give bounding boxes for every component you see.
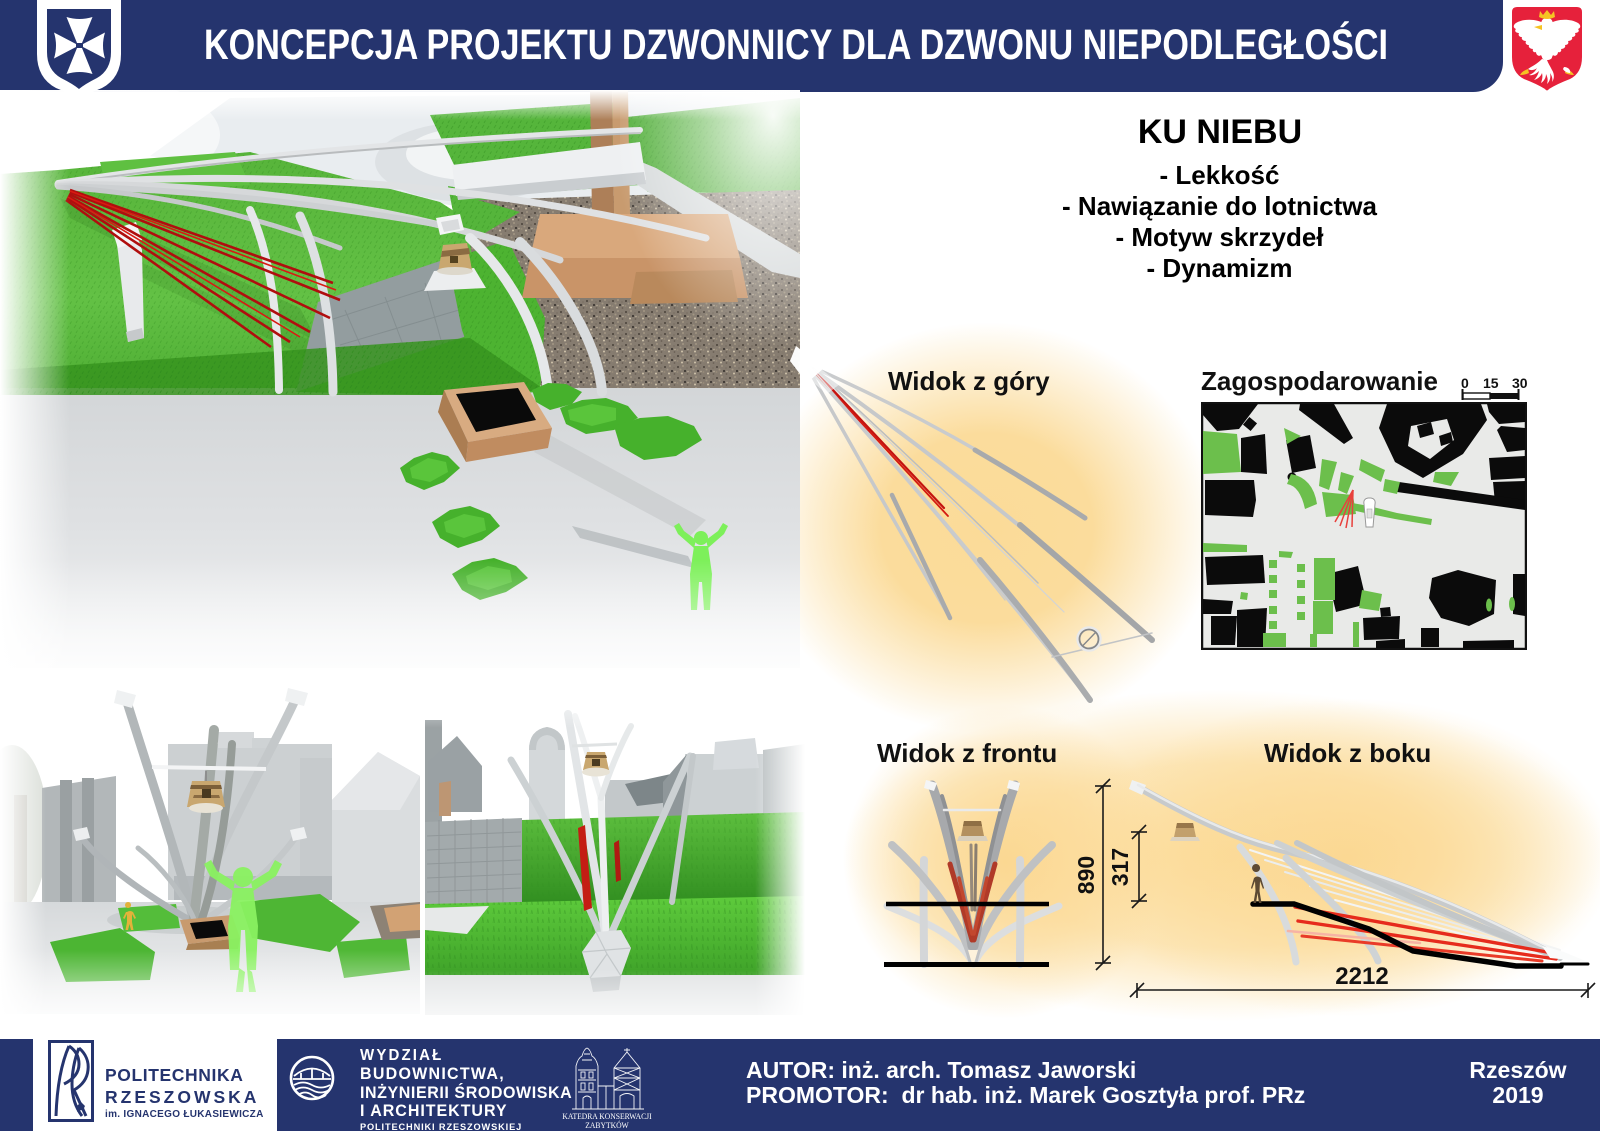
svg-text:317: 317 [1107,848,1133,886]
svg-text:30: 30 [1512,375,1528,391]
svg-text:2212: 2212 [1335,963,1388,990]
svg-text:15: 15 [1483,375,1499,391]
svg-text:KONCEPCJA PROJEKTU DZWONNICY D: KONCEPCJA PROJEKTU DZWONNICY DLA DZWONU … [204,20,1388,69]
svg-text:0: 0 [1461,375,1469,391]
